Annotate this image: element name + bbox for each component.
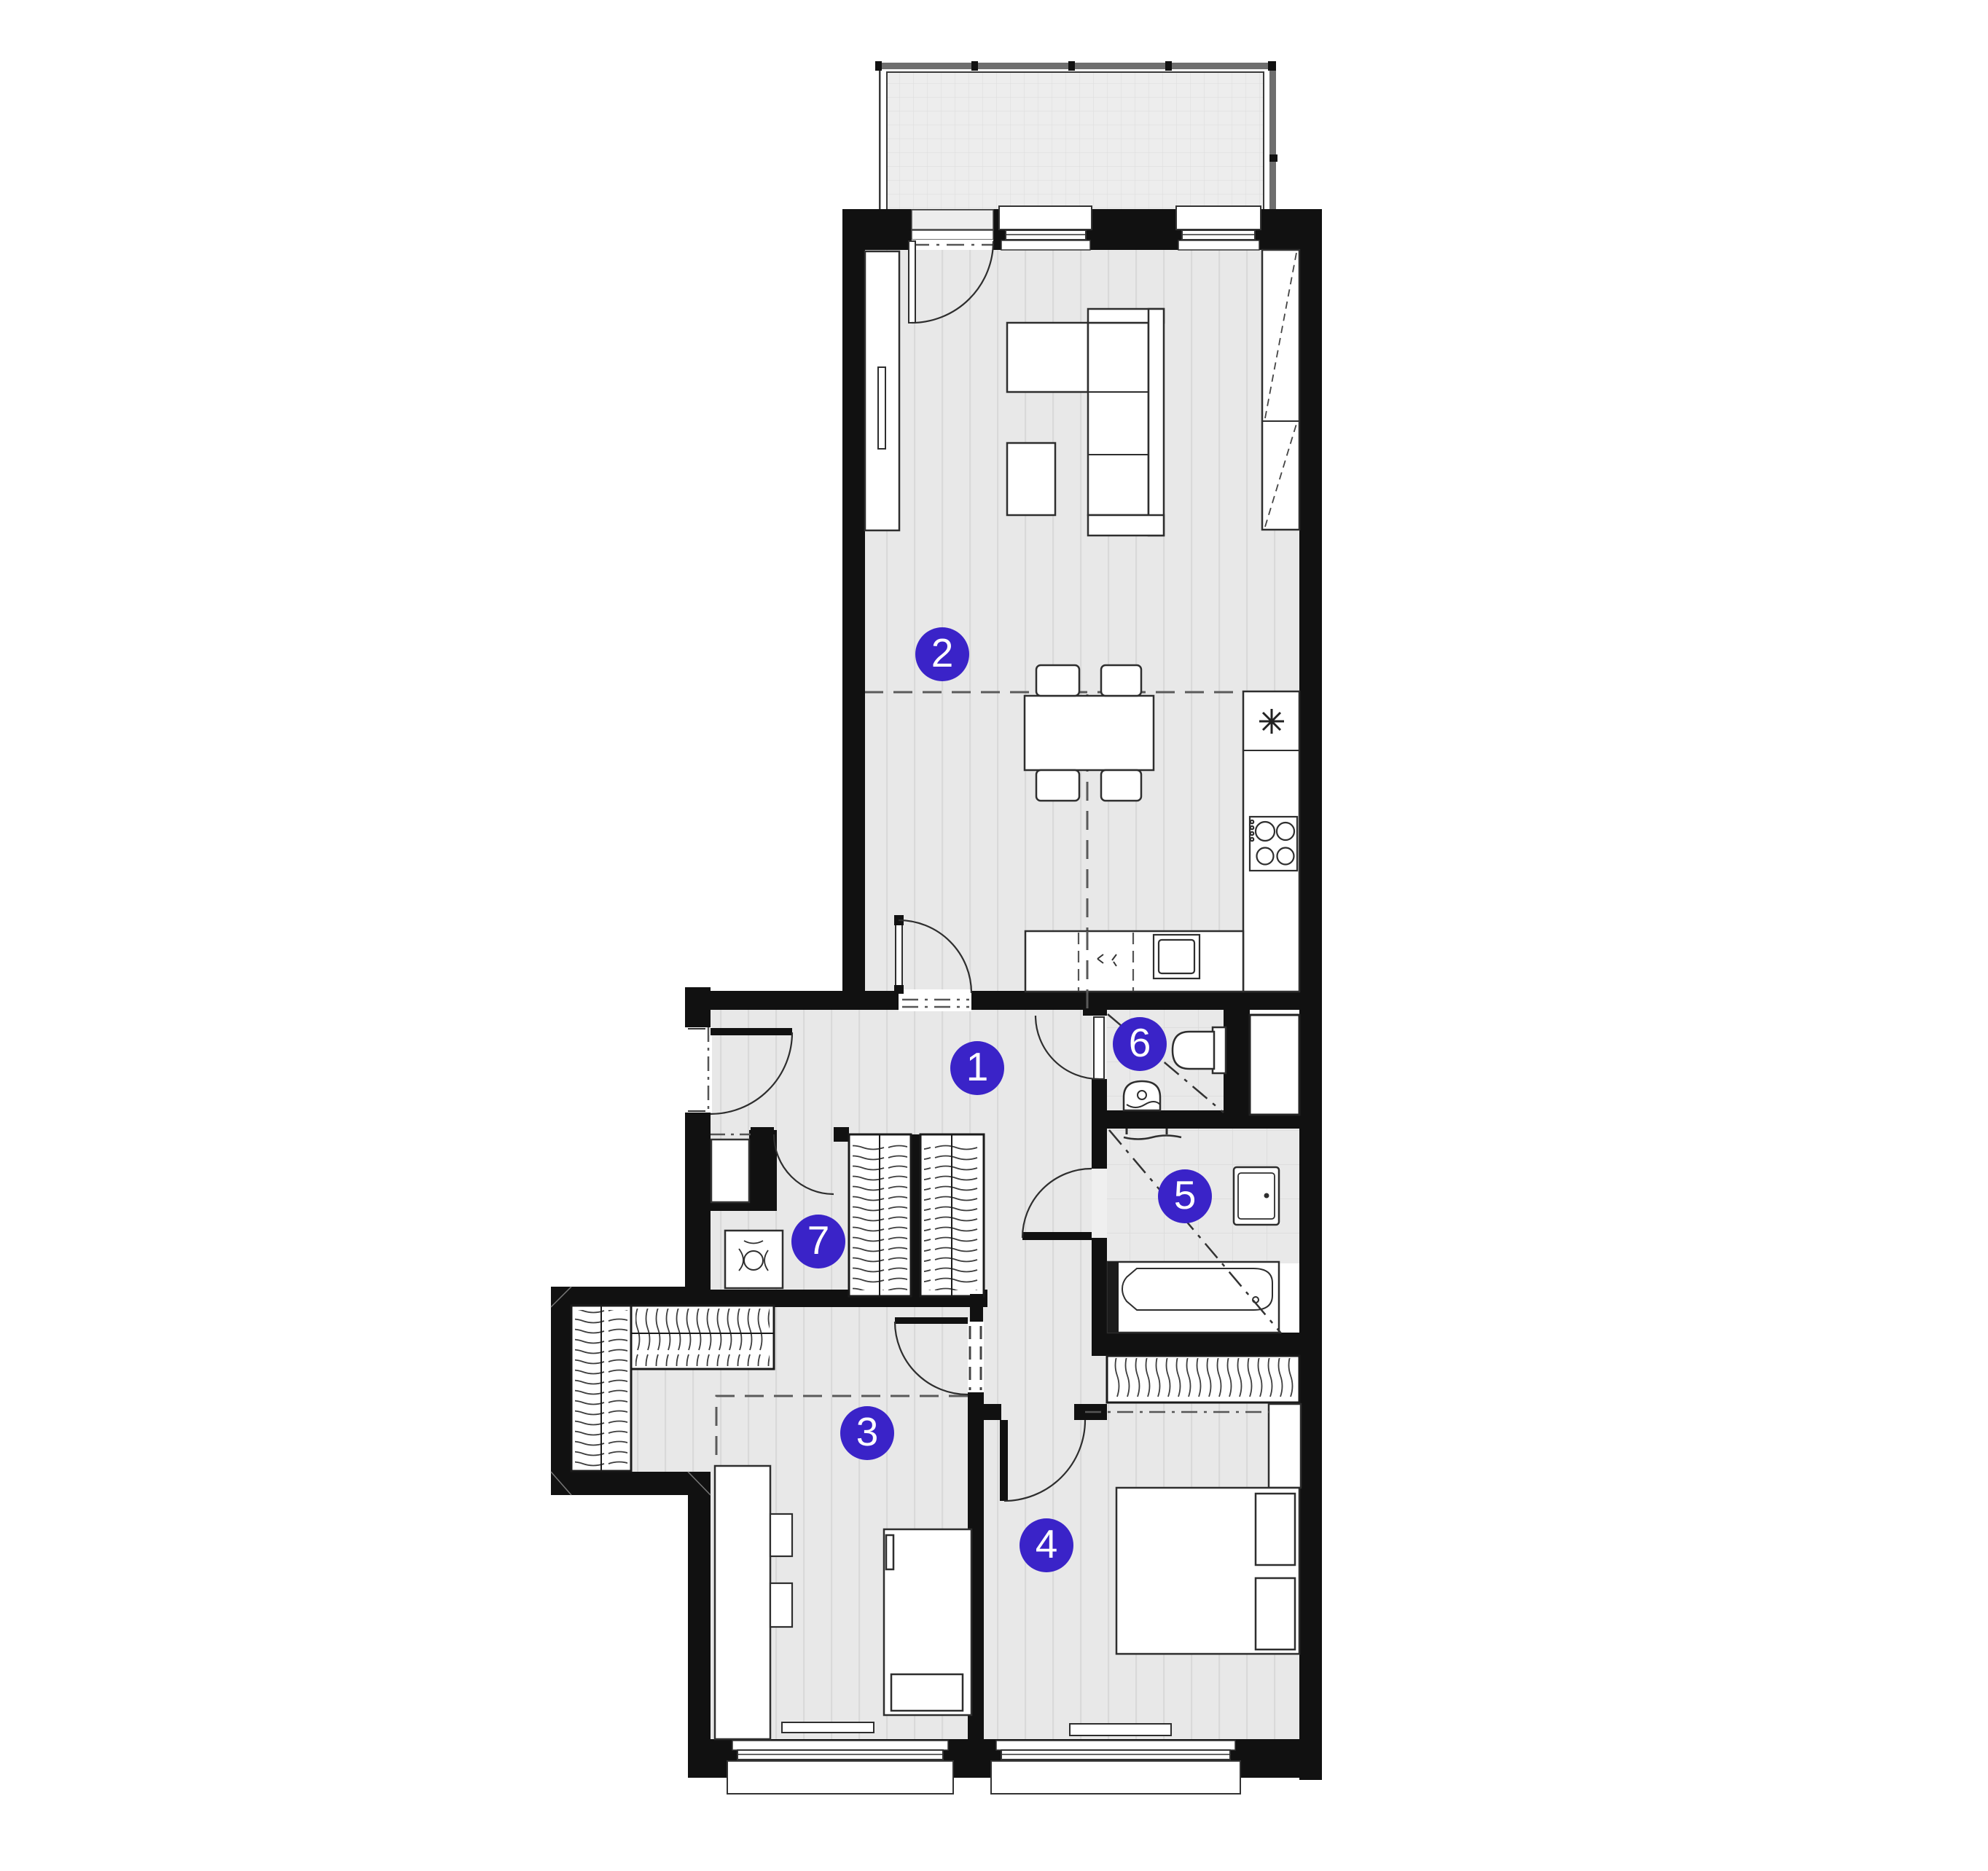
svg-text:4: 4	[1036, 1521, 1058, 1566]
svg-text:7: 7	[807, 1217, 830, 1263]
svg-text:1: 1	[966, 1044, 989, 1089]
svg-text:5: 5	[1174, 1172, 1197, 1217]
svg-text:3: 3	[856, 1409, 879, 1454]
svg-text:6: 6	[1129, 1020, 1151, 1065]
svg-text:2: 2	[931, 630, 954, 675]
